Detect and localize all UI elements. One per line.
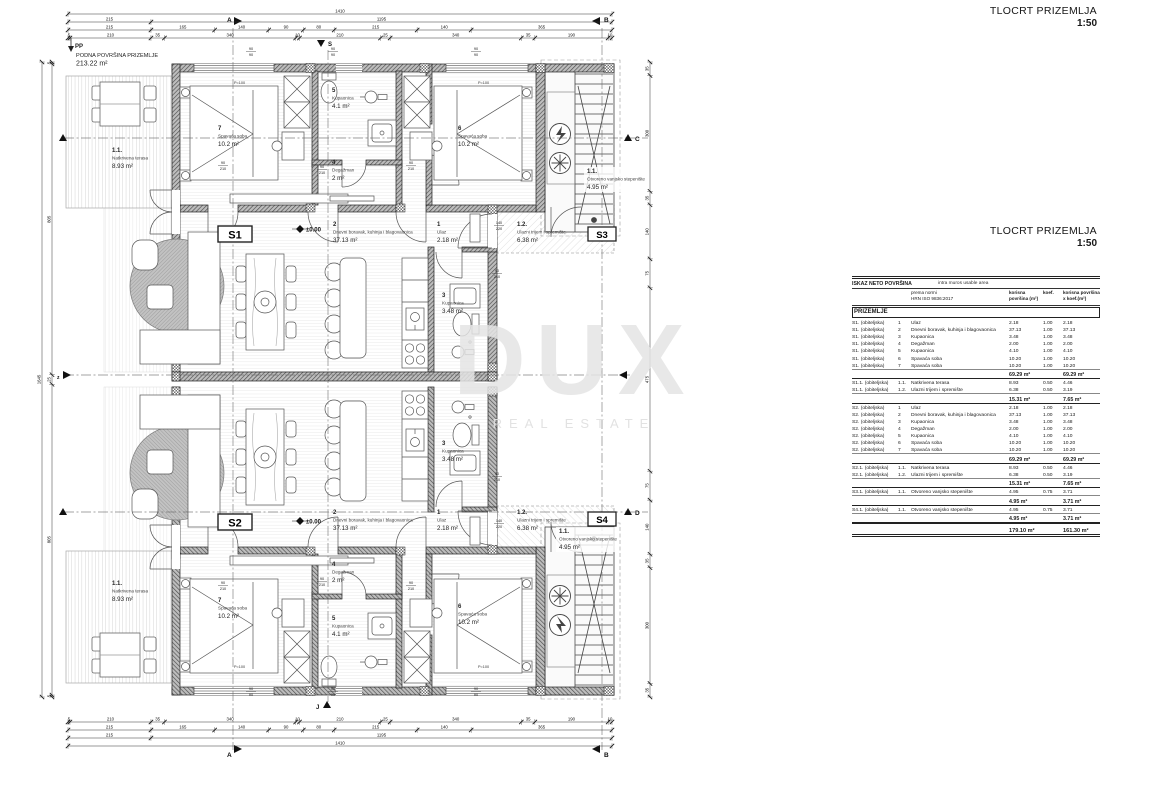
table-cell: 0.75 — [1043, 508, 1063, 513]
table-cell: 7 — [898, 364, 911, 369]
room-name: Kupaonica — [442, 449, 464, 454]
dim-value: 35 — [644, 687, 649, 692]
kitchen-icon — [402, 258, 428, 368]
net-area-table: ISKAZ NETO POVRŠINA intra muros usable a… — [852, 276, 1100, 537]
table-cell: 3.48 — [1009, 420, 1043, 425]
table-cell: 1.1. — [898, 381, 911, 386]
armchair-icon — [132, 240, 158, 270]
table-cell: Natkrivena terasa — [911, 381, 1009, 386]
table-total-row: 179.10 m²161.30 m² — [852, 523, 1100, 537]
dim-value: 10 — [295, 32, 300, 37]
table-subtotal-row: 69.29 m²69.29 m² — [852, 453, 1100, 463]
external-staircase — [541, 60, 620, 236]
col-norm: prema normiHRN ISO 9836:2017 — [911, 290, 1009, 301]
table-cell: 2.18 — [1009, 321, 1043, 326]
marker-a-top: A — [227, 17, 232, 24]
svg-text:90: 90 — [221, 161, 225, 165]
table-row: S4.1. (obiteljska)1.1.Otvoreno vanjsko s… — [852, 506, 1100, 513]
table-row: S1.1. (obiteljska)1.1.Natkrivena terasa8… — [852, 379, 1100, 386]
table-cell: 10.20 — [1009, 448, 1043, 453]
room-area: 6.38 m² — [517, 525, 538, 532]
room-name: Degažman — [332, 168, 355, 173]
table-subtotal-row: 69.29 m²69.29 m² — [852, 369, 1100, 379]
room-name: Kupaonica — [442, 301, 464, 306]
table-cell: 8.93 — [1009, 381, 1043, 386]
table-cell: 4.10 — [1063, 434, 1100, 439]
room-number: 1.1. — [112, 581, 122, 587]
dim-value: 165 — [179, 24, 187, 29]
svg-text:90: 90 — [409, 161, 413, 165]
dim-value: 1195 — [377, 16, 387, 21]
room-number: 1.2. — [517, 222, 527, 228]
table-header-row: prema normiHRN ISO 9836:2017 korisna pov… — [852, 289, 1100, 306]
svg-text:90: 90 — [474, 47, 478, 51]
table-cell: 1.1. — [898, 466, 911, 471]
table-row: S2.1. (obiteljska)1.2.Ulazni trijem i sp… — [852, 471, 1100, 478]
table-cell: S1.1. (obiteljska) — [852, 381, 898, 386]
dim-value: 25 — [383, 716, 388, 721]
svg-text:90: 90 — [320, 165, 324, 169]
dim-value: 215 — [106, 732, 114, 737]
table-cell: 0.50 — [1043, 466, 1063, 471]
room-number: 1.1. — [587, 169, 597, 175]
marker-z-left: z — [57, 375, 60, 381]
dim-value: 300 — [644, 621, 649, 629]
dim-value: 35 — [644, 195, 649, 200]
table-cell: S2. (obiteljska) — [852, 413, 898, 418]
table-cell: 4.95 m² — [1009, 499, 1043, 505]
table-cell: 1.1. — [898, 490, 911, 495]
table-cell: Ulaz — [911, 406, 1009, 411]
svg-text:90: 90 — [249, 53, 253, 57]
table-cell: 1.00 — [1043, 406, 1063, 411]
dim-value: 5 — [46, 61, 51, 64]
svg-text:90: 90 — [474, 693, 478, 697]
dim-value: 35 — [644, 558, 649, 563]
room-name: Spavaća soba — [218, 606, 248, 611]
table-cell: 3.48 — [1009, 335, 1043, 340]
marker-b-bottom: B — [604, 752, 609, 759]
parapet-label: P=100 — [234, 81, 245, 85]
table-cell: S2. (obiteljska) — [852, 434, 898, 439]
table-cell: 4.95 — [1009, 490, 1043, 495]
dim-value: 10 — [295, 716, 300, 721]
parapet-label: P=100 — [478, 81, 489, 85]
opening-size: 9090 — [471, 47, 481, 57]
table-cell: 10.20 — [1009, 441, 1043, 446]
dim-value: 10 — [608, 716, 613, 721]
table-cell: Otvoreno vanjsko stepenište — [911, 508, 1009, 513]
dim-value: 340 — [226, 716, 234, 721]
floor-note-line1: PODNA POVRŠINA PRIZEMLJE — [76, 52, 158, 59]
table-cell: 0.50 — [1043, 473, 1063, 478]
table-cell: 6 — [898, 357, 911, 362]
table-cell: 69.29 m² — [1063, 457, 1100, 463]
table-cell: 1 — [898, 321, 911, 326]
dim-value: 210 — [107, 716, 115, 721]
fan-icon — [550, 153, 571, 174]
dim-value: 90 — [284, 24, 289, 29]
table-cell: 1.00 — [1043, 413, 1063, 418]
svg-text:210: 210 — [494, 478, 500, 482]
table-cell: Kupaonica — [911, 434, 1009, 439]
dim-value: 365 — [538, 724, 546, 729]
table-cell: Otvoreno vanjsko stepenište — [911, 490, 1009, 495]
dim-value: 210 — [107, 32, 115, 37]
room-area: 10.2 m² — [458, 141, 479, 148]
table-cell: S1.1. (obiteljska) — [852, 388, 898, 393]
table-cell: S1. (obiteljska) — [852, 357, 898, 362]
dim-value: 80 — [316, 724, 321, 729]
room-area: 37.13 m² — [333, 525, 357, 532]
room-name: Ulaz — [437, 518, 447, 523]
table-cell: 69.29 m² — [1009, 457, 1043, 463]
table-row: S2.1. (obiteljska)1.1.Natkrivena terasa8… — [852, 464, 1100, 471]
table-cell: 1 — [898, 406, 911, 411]
floor-note: PP PODNA POVRŠINA PRIZEMLJE 213.22 m² — [68, 38, 158, 68]
table-cell: 37.13 — [1009, 328, 1043, 333]
table-cell: 37.13 — [1063, 413, 1100, 418]
window — [446, 64, 528, 72]
table-row: S3.1. (obiteljska)1.1.Otvoreno vanjsko s… — [852, 488, 1100, 495]
dim-value: 190 — [568, 716, 576, 721]
table-cell: 15.31 m² — [1009, 481, 1043, 487]
table-cell: 3.48 — [1063, 420, 1100, 425]
table-cell: S1. (obiteljska) — [852, 328, 898, 333]
table-cell: 8.93 — [1009, 466, 1043, 471]
table-cell: Natkrivena terasa — [911, 466, 1009, 471]
table-cell: 1.00 — [1043, 335, 1063, 340]
table-row: S1. (obiteljska)5Kupaonica4.101.004.10 — [852, 347, 1100, 354]
dim-value: 475 — [644, 375, 649, 383]
room-name: Ulazni trijem i spremište — [517, 518, 566, 523]
table-row: S1. (obiteljska)2Dnevni boravak, kuhinja… — [852, 326, 1100, 333]
svg-text:90: 90 — [320, 577, 324, 581]
table-cell: 10.20 — [1063, 441, 1100, 446]
table-cell: 1.00 — [1043, 441, 1063, 446]
room-name: Otvoreno vanjsko stepenište — [587, 177, 645, 182]
svg-text:210: 210 — [319, 171, 325, 175]
window — [336, 64, 362, 72]
table-cell: 1.00 — [1043, 357, 1063, 362]
wardrobe-icon — [284, 76, 310, 128]
table-cell: 69.29 m² — [1063, 372, 1100, 378]
table-cell: 4.46 — [1063, 381, 1100, 386]
table-cell: 5 — [898, 434, 911, 439]
room-area: 10.2 m² — [218, 613, 239, 620]
table-cell: 3.71 — [1063, 490, 1100, 495]
table-cell: S2. (obiteljska) — [852, 448, 898, 453]
room-area: 6.38 m² — [517, 237, 538, 244]
dim-value: 35 — [155, 32, 160, 37]
room-name: Ulazni trijem i spremište — [517, 230, 566, 235]
marker-j: J — [316, 705, 319, 711]
dim-value: 35 — [644, 66, 649, 71]
table-cell: Dnevni boravak, kuhinja i blagovaonica — [911, 413, 1009, 418]
dim-value: 1410 — [335, 8, 345, 13]
table-cell: 3.19 — [1063, 388, 1100, 393]
table-cell: 0.75 — [1043, 490, 1063, 495]
table-cell: Kupaonica — [911, 349, 1009, 354]
room-name: Kupaonica — [332, 96, 354, 101]
window — [194, 64, 274, 72]
room-area: 2.18 m² — [437, 525, 458, 532]
table-cell: 2.18 — [1063, 321, 1100, 326]
unit-tag-s2: S2 — [228, 518, 241, 530]
svg-text:210: 210 — [408, 587, 414, 591]
table-cell: S2. (obiteljska) — [852, 406, 898, 411]
table-cell: 2.00 — [1063, 342, 1100, 347]
marker-b-top: B — [604, 17, 609, 24]
svg-text:±0.00: ±0.00 — [306, 228, 322, 234]
table-cell: Kupaonica — [911, 335, 1009, 340]
col-area: korisna površina (m²) — [1009, 290, 1043, 301]
drawing-title-2: TLOCRT PRIZEMLJA 1:50 — [990, 225, 1097, 251]
dim-value: 5 — [68, 716, 71, 721]
opening-size: 9090 — [328, 47, 338, 57]
table-title: ISKAZ NETO POVRŠINA — [852, 281, 938, 287]
table-cell: 1.00 — [1043, 364, 1063, 369]
marker-a-bottom: A — [227, 752, 232, 759]
room-area: 4.95 m² — [587, 184, 608, 191]
drawing-title-text: TLOCRT PRIZEMLJA — [990, 225, 1097, 238]
table-row: S2. (obiteljska)7Spavaća soba10.201.0010… — [852, 446, 1100, 453]
table-cell: Spavaća soba — [911, 448, 1009, 453]
dim-value: 5 — [46, 694, 51, 697]
dim-value: 210 — [336, 716, 344, 721]
table-cell: S1. (obiteljska) — [852, 364, 898, 369]
table-cell: 0.50 — [1043, 388, 1063, 393]
dim-value: 35 — [155, 716, 160, 721]
table-cell: Degažman — [911, 342, 1009, 347]
table-subtotal-row: 4.95 m²3.71 m² — [852, 495, 1100, 505]
table-cell: S4.1. (obiteljska) — [852, 508, 898, 513]
table-cell: 10.20 — [1063, 448, 1100, 453]
dim-value: 140 — [441, 24, 449, 29]
unit-tag-s1: S1 — [228, 230, 241, 242]
room-area: 4.1 m² — [332, 103, 350, 110]
party-wall — [172, 372, 497, 381]
svg-text:90: 90 — [474, 687, 478, 691]
drawing-sheet: A A B B C D S J z PP PODNA POVRŠINA PRIZ… — [0, 0, 1158, 810]
table-cell: 2.00 — [1009, 342, 1043, 347]
room-name: Dnevni boravak, kuhinja i blagovaonica — [333, 230, 413, 235]
table-cell: 3.71 m² — [1063, 499, 1100, 505]
table-cell: 1.00 — [1043, 342, 1063, 347]
electrical-icon — [550, 124, 571, 145]
dining-table-icon — [236, 254, 296, 350]
svg-text:140: 140 — [496, 519, 502, 523]
dim-value: 140 — [441, 724, 449, 729]
room-number: 1.1. — [112, 148, 122, 154]
room-name: Otvoreno vanjsko stepenište — [559, 537, 617, 542]
table-cell: 15.31 m² — [1009, 397, 1043, 403]
dim-value: 300 — [644, 129, 649, 137]
room-name: Spavaća soba — [458, 134, 488, 139]
unit-s2-drawing — [66, 387, 620, 699]
dim-value: 1195 — [377, 732, 387, 737]
dim-value: 165 — [179, 724, 187, 729]
table-cell: 4.10 — [1063, 349, 1100, 354]
table-row: S1.1. (obiteljska)1.2.Ulazni trijem i sp… — [852, 386, 1100, 393]
unit-tag-s3: S3 — [596, 230, 608, 241]
room-area: 8.93 m² — [112, 163, 133, 170]
room-area: 10.2 m² — [458, 619, 479, 626]
table-row: S2. (obiteljska)4Degažman2.001.002.00 — [852, 425, 1100, 432]
table-cell: 3.71 m² — [1063, 516, 1100, 522]
table-cell: S2.1. (obiteljska) — [852, 466, 898, 471]
table-row: S2. (obiteljska)3Kupaonica3.481.003.48 — [852, 418, 1100, 425]
room-area: 4.95 m² — [559, 544, 580, 551]
room-area: 37.13 m² — [333, 237, 357, 244]
room-area: 3.48 m² — [442, 456, 463, 463]
dim-value: 140 — [644, 228, 649, 236]
table-cell: 6.38 — [1009, 473, 1043, 478]
wardrobe-icon — [404, 76, 430, 128]
svg-text:90: 90 — [331, 693, 335, 697]
table-cell: 3.71 — [1063, 508, 1100, 513]
dim-value: 140 — [644, 523, 649, 531]
dim-value: 75 — [644, 270, 649, 275]
dim-value: 80 — [316, 24, 321, 29]
parapet-label: P=100 — [478, 665, 489, 669]
svg-text:90: 90 — [331, 53, 335, 57]
table-cell: 1.2. — [898, 388, 911, 393]
dim-value: 340 — [452, 716, 460, 721]
svg-text:220: 220 — [496, 525, 502, 529]
table-row: S1. (obiteljska)6Spavaća soba10.201.0010… — [852, 354, 1100, 361]
table-cell: S2. (obiteljska) — [852, 441, 898, 446]
room-area: 2 m² — [332, 577, 344, 584]
dim-value: 140 — [238, 724, 246, 729]
table-row: S2. (obiteljska)6Spavaća soba10.201.0010… — [852, 439, 1100, 446]
dim-value: 1410 — [335, 740, 345, 745]
table-row: S2. (obiteljska)2Dnevni boravak, kuhinja… — [852, 411, 1100, 418]
table-cell: 37.13 — [1063, 328, 1100, 333]
table-cell: 1.00 — [1043, 349, 1063, 354]
dim-value: 35 — [526, 32, 531, 37]
room-name: Spavaća soba — [218, 134, 248, 139]
room-number: 1.2. — [517, 510, 527, 516]
svg-text:220: 220 — [496, 227, 502, 231]
dim-value: 25 — [46, 377, 51, 382]
dim-value: 805 — [46, 215, 51, 223]
table-cell: 1.00 — [1043, 448, 1063, 453]
table-cell: S1. (obiteljska) — [852, 349, 898, 354]
pp-label: PP — [75, 44, 83, 50]
room-area: 2 m² — [332, 175, 344, 182]
dim-value: 190 — [568, 32, 576, 37]
floor-note-area: 213.22 m² — [76, 61, 108, 68]
marker-d: D — [635, 510, 640, 517]
dim-value: 210 — [336, 32, 344, 37]
svg-text:210: 210 — [494, 275, 500, 279]
table-cell: 3 — [898, 335, 911, 340]
table-cell: Spavaća soba — [911, 441, 1009, 446]
table-cell: 7 — [898, 448, 911, 453]
room-number: 1.1. — [559, 529, 569, 535]
table-cell: S1. (obiteljska) — [852, 321, 898, 326]
table-cell: S2. (obiteljska) — [852, 427, 898, 432]
table-cell: S1. (obiteljska) — [852, 342, 898, 347]
unit-tag-s4: S4 — [596, 515, 608, 526]
table-cell: 1.2. — [898, 473, 911, 478]
dim-value: 140 — [238, 24, 246, 29]
svg-text:±0.00: ±0.00 — [306, 520, 322, 526]
col-koef: koef. — [1043, 290, 1063, 296]
table-cell: Degažman — [911, 427, 1009, 432]
table-cell: 10.20 — [1063, 364, 1100, 369]
table-cell: Spavaća soba — [911, 364, 1009, 369]
svg-text:90: 90 — [409, 581, 413, 585]
svg-text:90: 90 — [249, 693, 253, 697]
table-cell: 2.18 — [1063, 406, 1100, 411]
table-cell: 1.00 — [1043, 321, 1063, 326]
svg-text:210: 210 — [220, 587, 226, 591]
dim-value: 215 — [372, 24, 380, 29]
svg-text:90: 90 — [249, 47, 253, 51]
room-name: Kupaonica — [332, 624, 354, 629]
table-cell: S2.1. (obiteljska) — [852, 473, 898, 478]
table-subtotal-row: 4.95 m²3.71 m² — [852, 513, 1100, 523]
table-cell: 2.00 — [1063, 427, 1100, 432]
table-cell: 5 — [898, 349, 911, 354]
table-cell: 2 — [898, 328, 911, 333]
dim-value: 75 — [644, 483, 649, 488]
room-area: 2.18 m² — [437, 237, 458, 244]
table-cell: Dnevni boravak, kuhinja i blagovaonica — [911, 328, 1009, 333]
dim-value: 10 — [608, 32, 613, 37]
table-cell: 3 — [898, 420, 911, 425]
table-cell: 69.29 m² — [1009, 372, 1043, 378]
table-row: S1. (obiteljska)1Ulaz2.181.002.18 — [852, 319, 1100, 326]
table-cell: 4 — [898, 427, 911, 432]
table-cell: 2.18 — [1009, 406, 1043, 411]
toilet-icon — [453, 312, 479, 336]
table-cell: 4 — [898, 342, 911, 347]
table-cell: 6.38 — [1009, 388, 1043, 393]
table-cell: Ulazni trijem i spremište — [911, 388, 1009, 393]
dim-value: 215 — [106, 24, 114, 29]
table-cell: 0.50 — [1043, 381, 1063, 386]
room-name: Spavaća soba — [458, 612, 488, 617]
dim-value: 215 — [106, 16, 114, 21]
table-cell: Spavaća soba — [911, 357, 1009, 362]
table-cell: Ulaz — [911, 321, 1009, 326]
room-area: 10.2 m² — [218, 141, 239, 148]
table-cell: 10.20 — [1063, 357, 1100, 362]
table-cell: 10.20 — [1009, 364, 1043, 369]
table-title-en: intra muros usable area — [938, 281, 988, 286]
table-section-label: PRIZEMLJE — [852, 307, 1100, 318]
table-cell: 3.19 — [1063, 473, 1100, 478]
parapet-label: P=100 — [234, 665, 245, 669]
svg-text:210: 210 — [319, 583, 325, 587]
table-cell: 1.00 — [1043, 427, 1063, 432]
dim-value: 5 — [68, 32, 71, 37]
table-row: S1. (obiteljska)3Kupaonica3.481.003.48 — [852, 333, 1100, 340]
table-cell: 2.00 — [1009, 427, 1043, 432]
table-title-row: ISKAZ NETO POVRŠINA intra muros usable a… — [852, 279, 1100, 289]
table-cell: S3.1. (obiteljska) — [852, 490, 898, 495]
table-cell: 7.65 m² — [1063, 397, 1100, 403]
svg-text:210: 210 — [408, 167, 414, 171]
room-name: Natkrivena terasa — [112, 589, 148, 594]
svg-text:90: 90 — [331, 687, 335, 691]
table-cell: 37.13 — [1009, 413, 1043, 418]
table-cell: Ulazni trijem i spremište — [911, 473, 1009, 478]
table-cell: S1. (obiteljska) — [852, 335, 898, 340]
